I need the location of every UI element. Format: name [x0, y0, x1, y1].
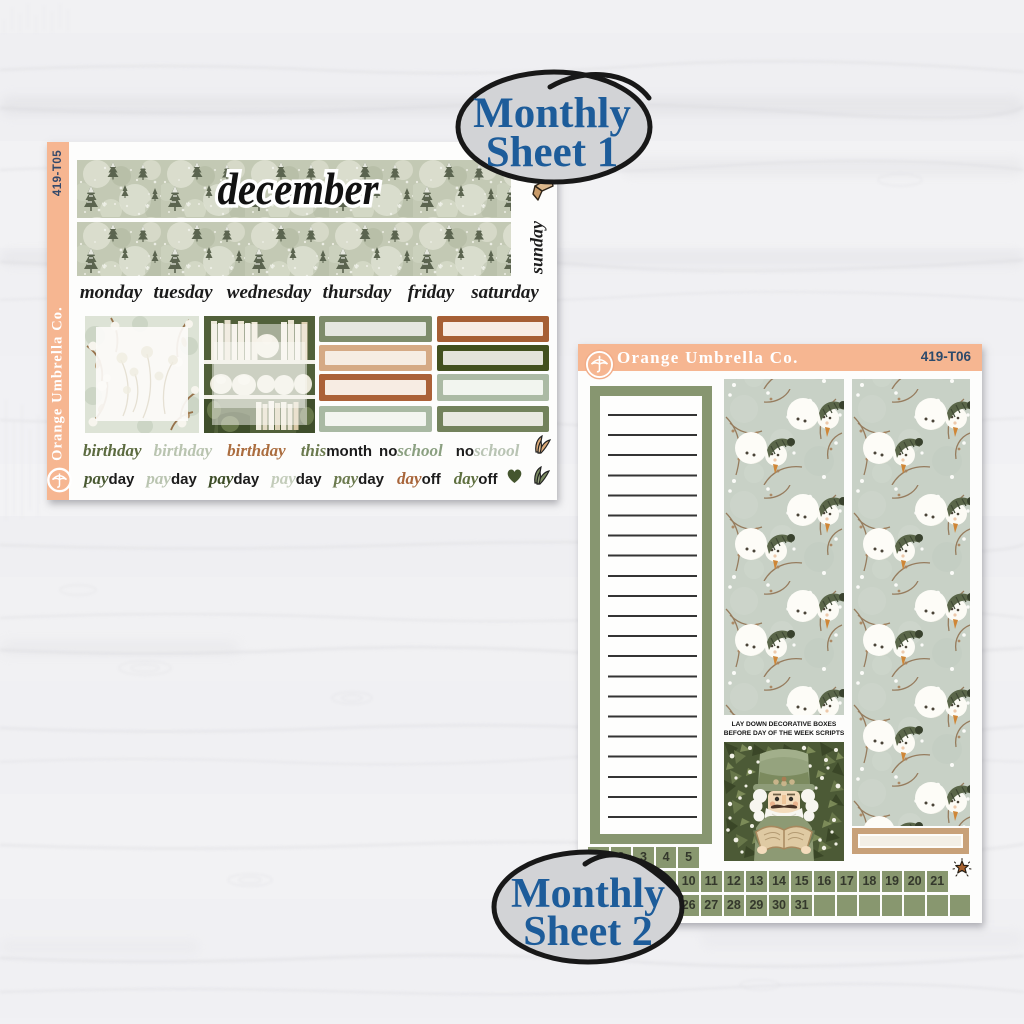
svg-text:Sheet 1: Sheet 1: [486, 129, 619, 176]
svg-text:december: december: [218, 164, 379, 214]
svg-text:Sheet 2: Sheet 2: [523, 909, 653, 955]
